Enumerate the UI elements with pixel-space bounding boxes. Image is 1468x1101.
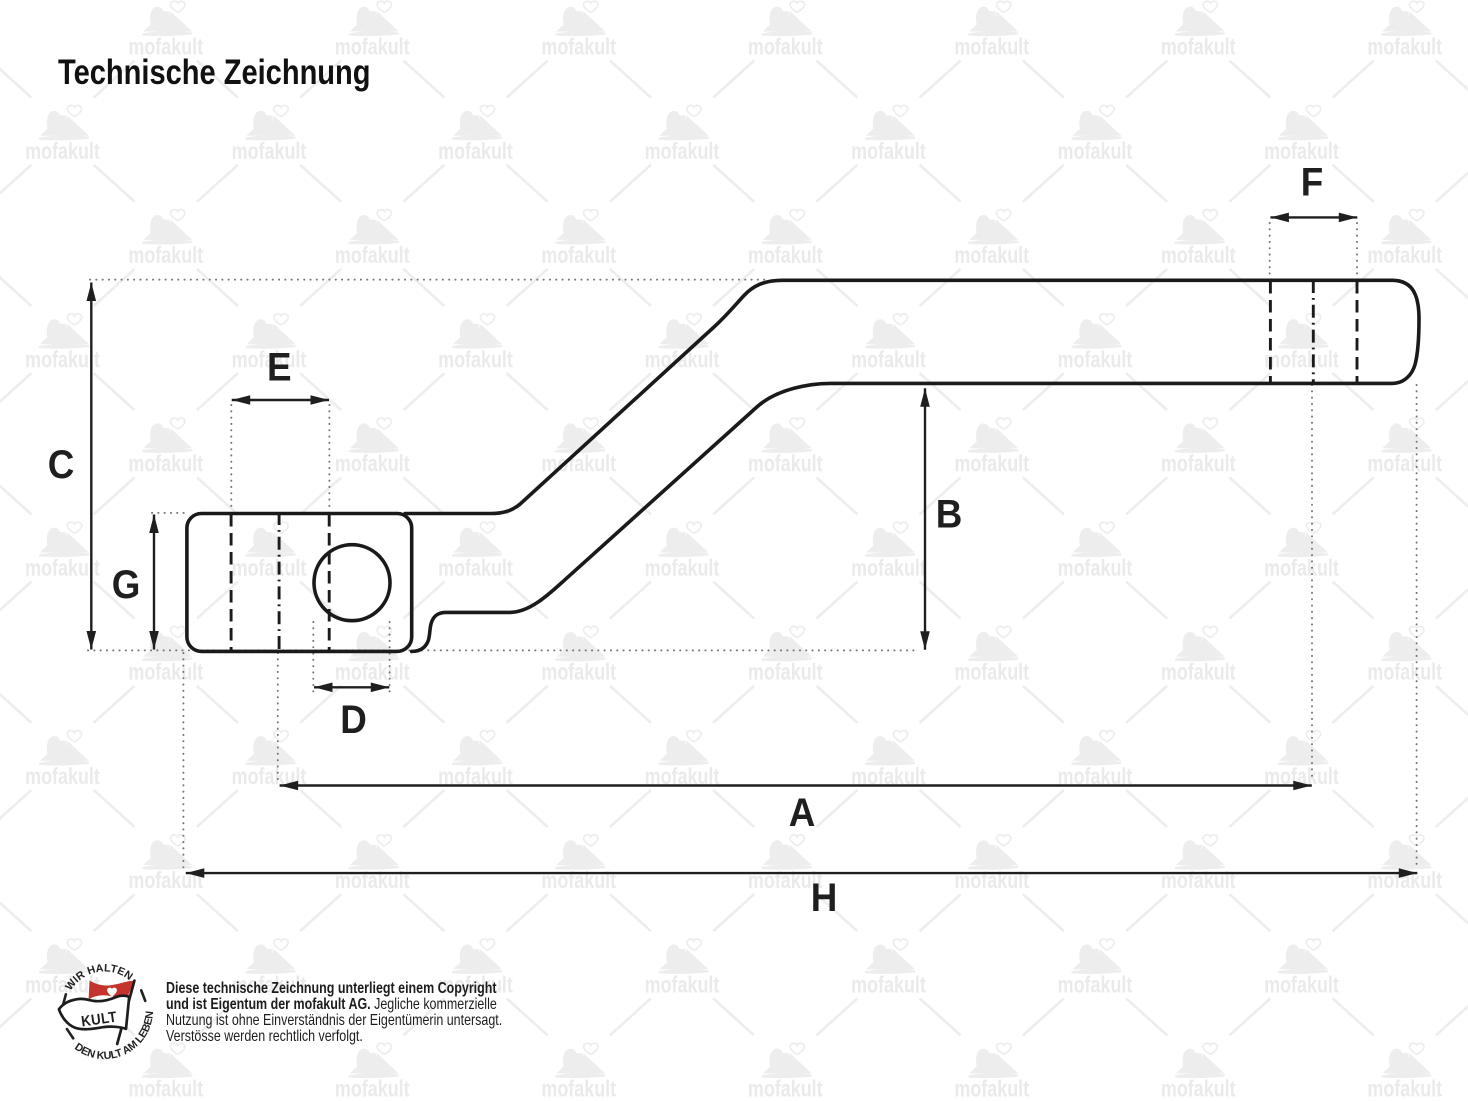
svg-text:F: F — [1301, 160, 1323, 205]
svg-text:A: A — [789, 791, 816, 836]
svg-text:D: D — [340, 698, 367, 743]
svg-text:Technische Zeichnung: Technische Zeichnung — [58, 52, 371, 91]
svg-text:B: B — [936, 492, 963, 537]
svg-text:E: E — [267, 345, 292, 390]
svg-text:Nutzung ist ohne Einverständni: Nutzung ist ohne Einverständnis der Eige… — [166, 1011, 502, 1029]
svg-text:und ist Eigentum der mofakult: und ist Eigentum der mofakult AG. Jeglic… — [166, 995, 497, 1013]
svg-text:Verstösse werden rechtlich ver: Verstösse werden rechtlich verfolgt. — [166, 1027, 363, 1045]
svg-text:G: G — [112, 563, 141, 608]
svg-text:C: C — [48, 443, 75, 488]
svg-text:Diese technische Zeichnung unt: Diese technische Zeichnung unterliegt ei… — [166, 979, 497, 997]
svg-text:H: H — [811, 876, 838, 921]
